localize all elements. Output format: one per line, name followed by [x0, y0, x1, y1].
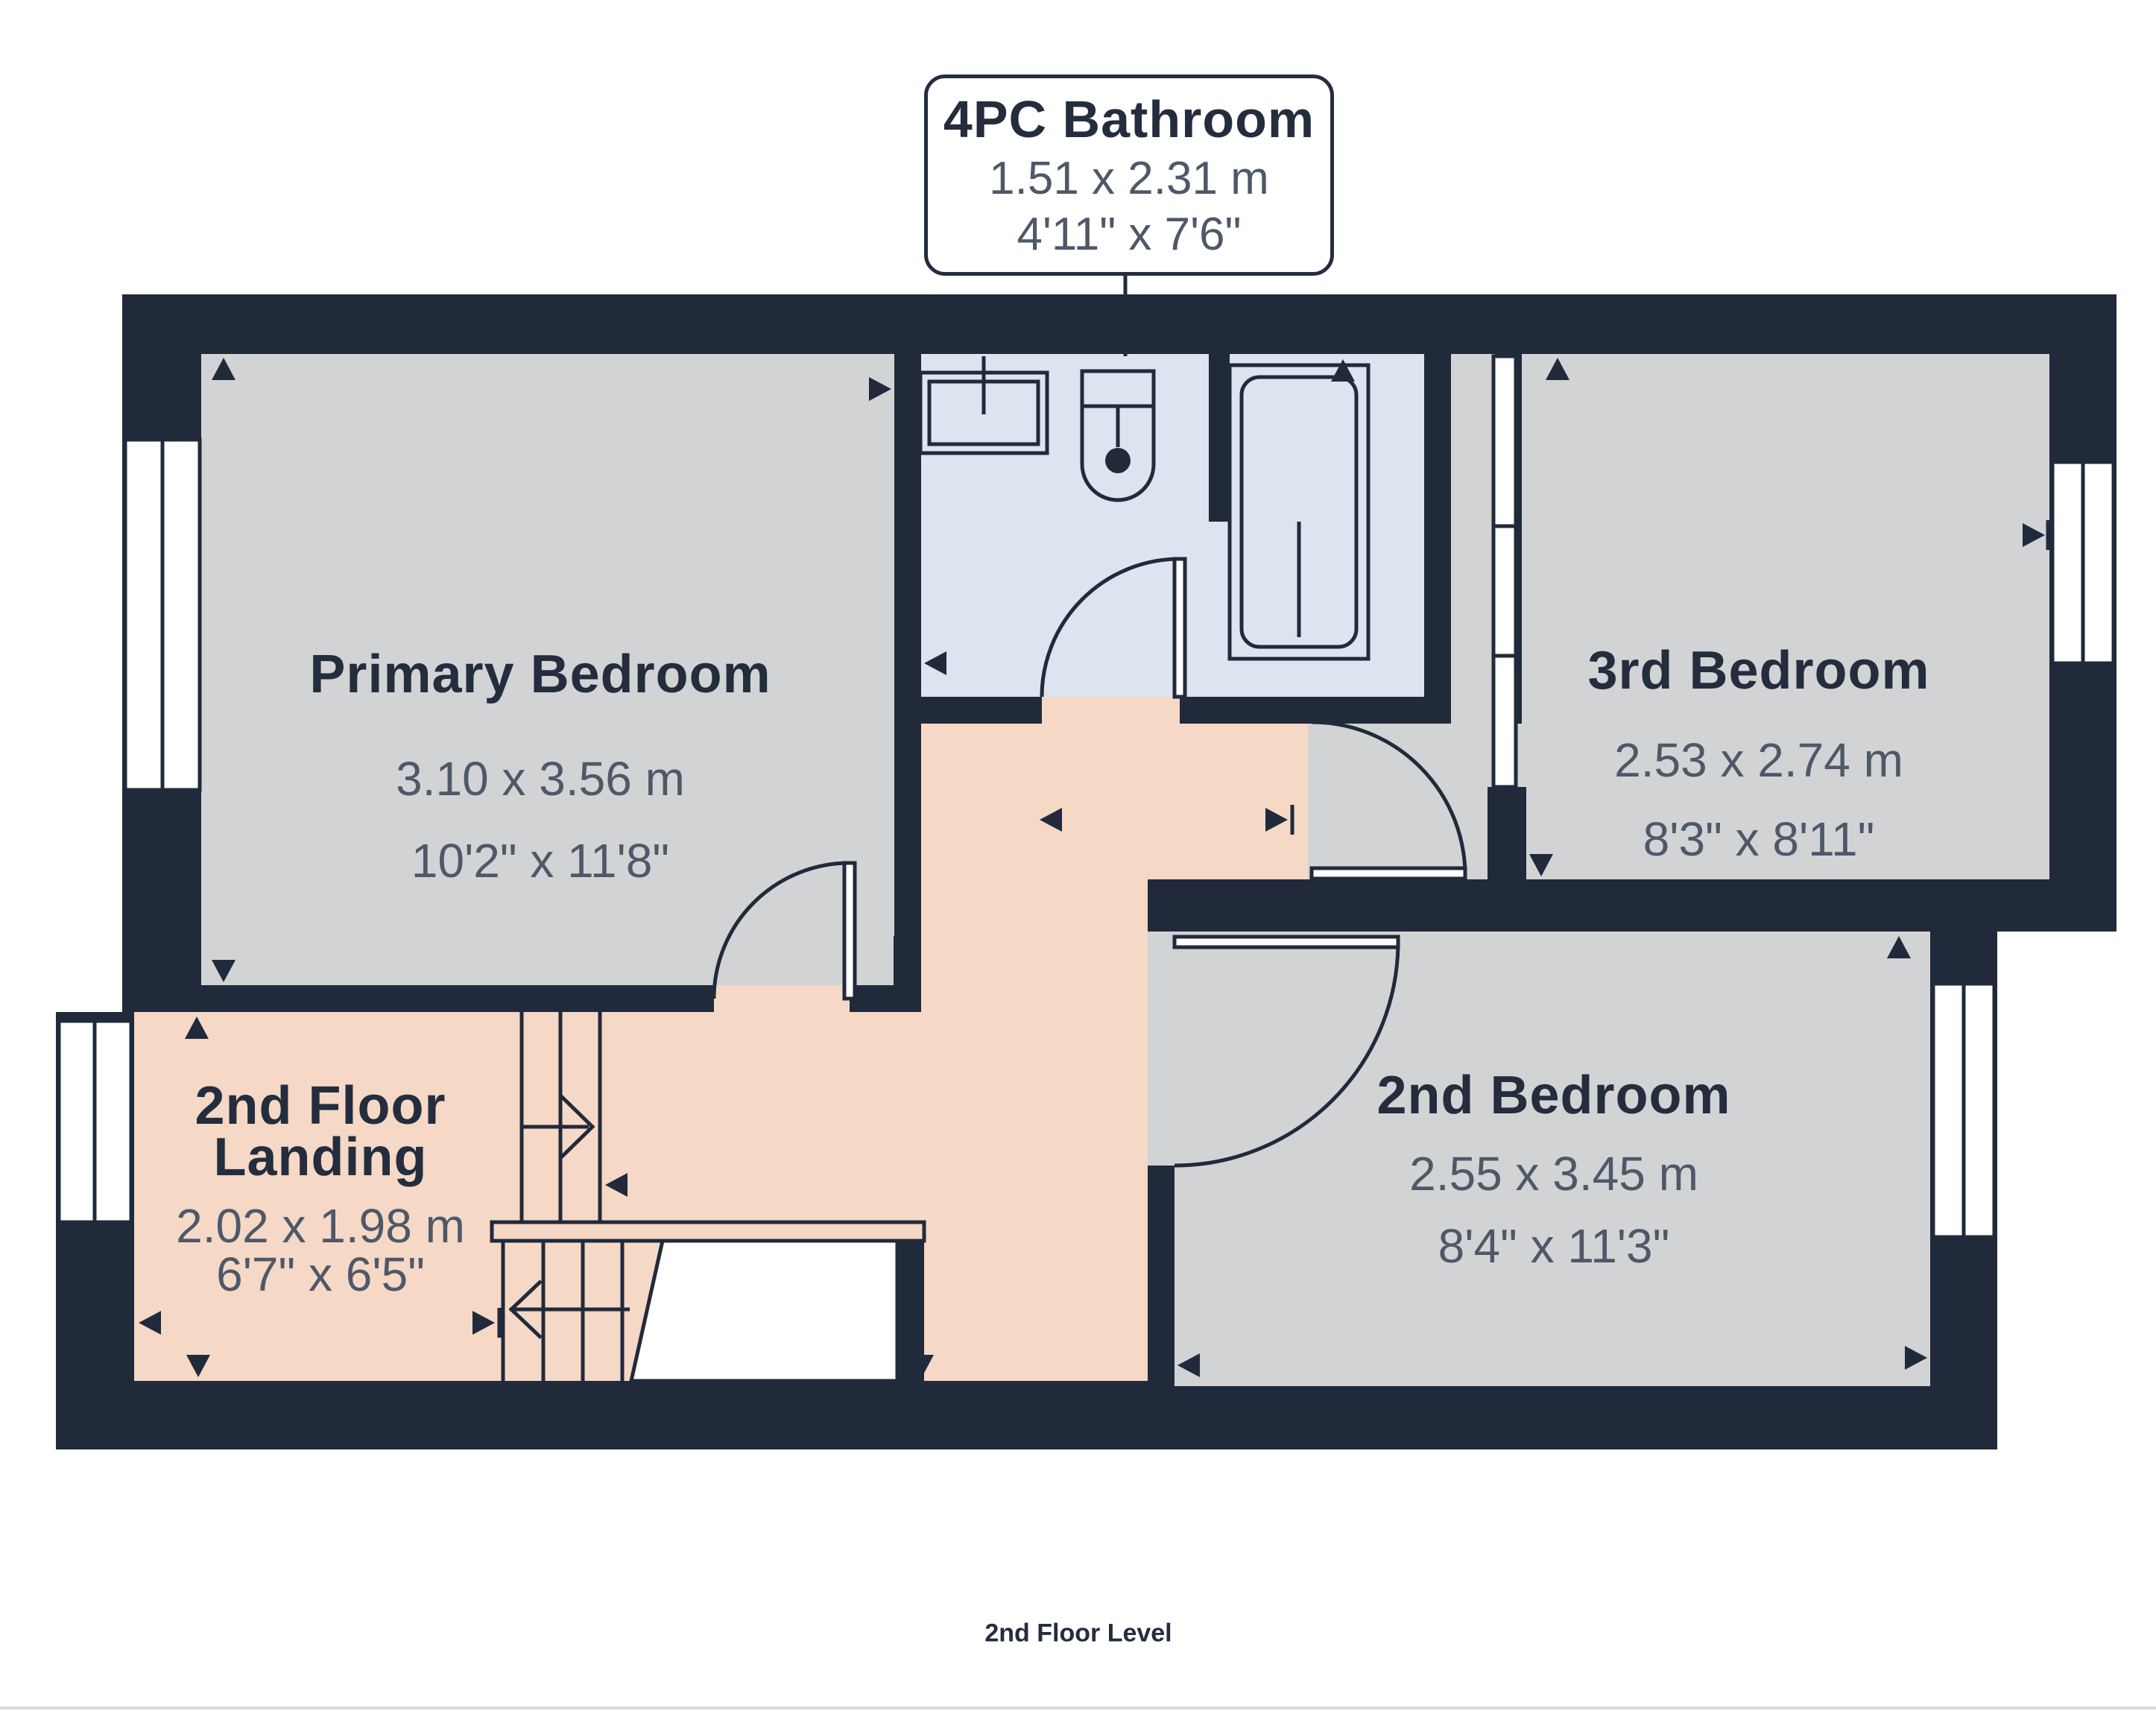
bathroom-callout: 4PC Bathroom 1.51 x 2.31 m 4'11" x 7'6"	[924, 75, 1334, 276]
second-bedroom-dim-metric: 2.55 x 3.45 m	[1409, 1146, 1698, 1201]
bathroom-callout-dim-metric: 1.51 x 2.31 m	[989, 152, 1269, 205]
closet-sliding-door	[1493, 356, 1516, 787]
primary-bedroom-dim-metric: 3.10 x 3.56 m	[396, 751, 685, 806]
third-bedroom-label: 3rd Bedroom	[1587, 640, 1929, 701]
stairwell-void	[631, 1241, 897, 1381]
second-bedroom-dim-imperial: 8'4" x 11'3"	[1438, 1218, 1670, 1274]
third-bedroom-floor	[1522, 354, 2049, 879]
landing-label-line2: Landing	[214, 1127, 428, 1188]
landing-dim-metric: 2.02 x 1.98 m	[176, 1198, 465, 1253]
bathroom-callout-title: 4PC Bathroom	[943, 89, 1315, 149]
primary-bedroom-label: Primary Bedroom	[309, 644, 771, 705]
primary-door-gap	[714, 985, 850, 1012]
landing-dim-imperial: 6'7" x 6'5"	[216, 1247, 425, 1302]
third-bedroom-dim-imperial: 8'3" x 8'11"	[1643, 812, 1875, 867]
bottom-divider-line	[0, 1707, 2156, 1710]
primary-bedroom-wall-stub	[894, 936, 921, 985]
bathroom-callout-dim-imperial: 4'11" x 7'6"	[1017, 208, 1242, 261]
window-landing	[59, 1021, 131, 1222]
window-third-bedroom	[2052, 462, 2114, 663]
second-bedroom-label: 2nd Bedroom	[1376, 1065, 1730, 1126]
floor-level-caption: 2nd Floor Level	[984, 1619, 1172, 1648]
floorplan-page: 4PC Bathroom 1.51 x 2.31 m 4'11" x 7'6" …	[0, 0, 2156, 1717]
third-bedroom-dim-metric: 2.53 x 2.74 m	[1614, 733, 1903, 788]
bathroom-door-gap	[1042, 697, 1180, 724]
window-second-bedroom	[1933, 984, 1994, 1237]
primary-bedroom-dim-imperial: 10'2" x 11'8"	[411, 833, 669, 888]
second-bedroom-west-wall	[1148, 1166, 1175, 1386]
window-primary-bedroom	[125, 440, 200, 790]
bathtub-partition-wall	[1209, 354, 1230, 522]
closet-wall-stub	[1488, 787, 1526, 879]
stair-railing	[492, 1222, 924, 1241]
